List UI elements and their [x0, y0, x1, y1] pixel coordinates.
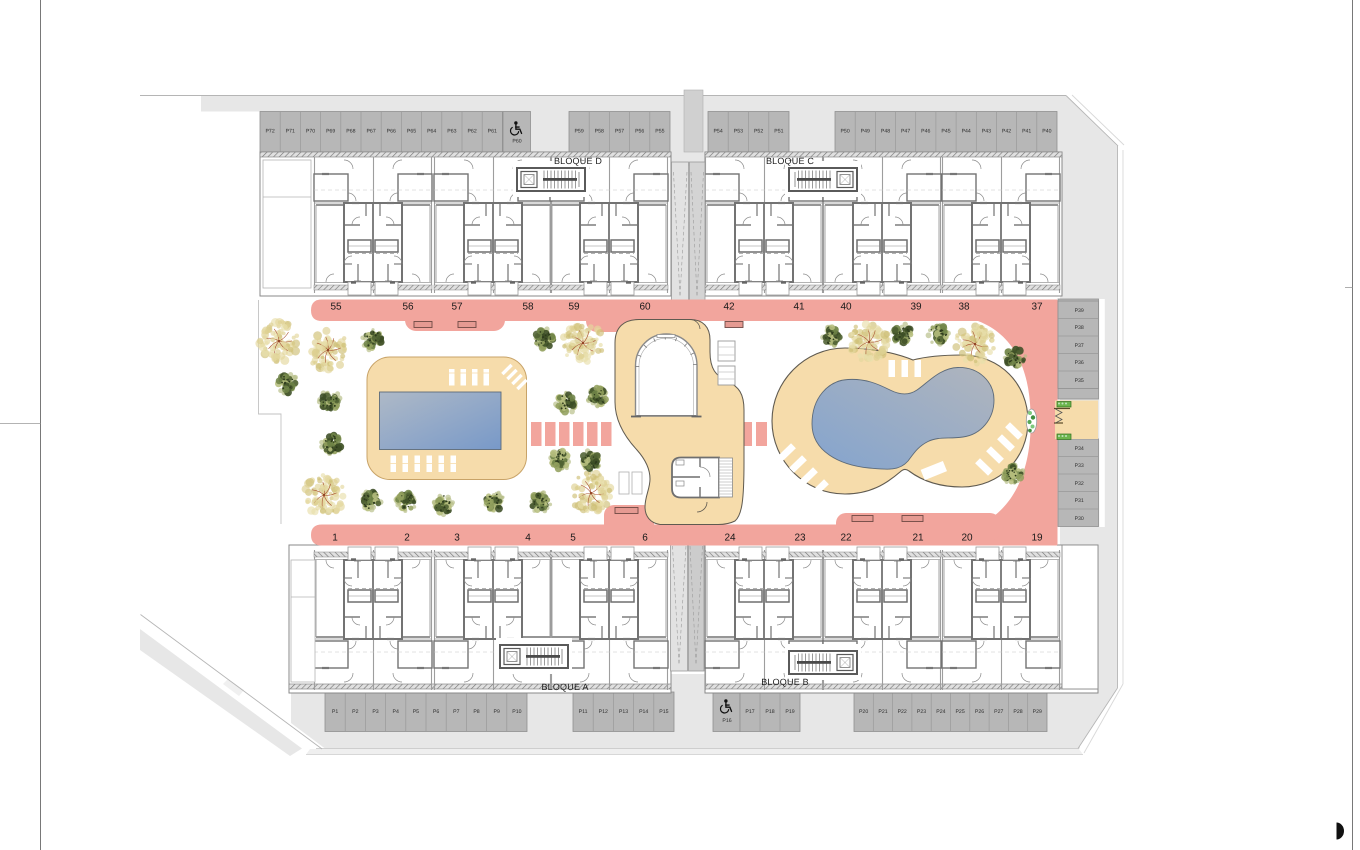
svg-text:P3: P3: [372, 709, 378, 715]
svg-text:41: 41: [793, 302, 805, 313]
svg-text:4: 4: [525, 533, 531, 544]
svg-text:P36: P36: [1075, 360, 1084, 366]
svg-text:P25: P25: [955, 709, 964, 715]
svg-text:P43: P43: [982, 129, 991, 135]
svg-text:59: 59: [568, 302, 580, 313]
svg-text:P18: P18: [765, 709, 774, 715]
svg-text:P7: P7: [453, 709, 459, 715]
svg-text:22: 22: [840, 533, 852, 544]
svg-text:58: 58: [522, 302, 534, 313]
svg-text:P59: P59: [574, 129, 583, 135]
svg-text:P16: P16: [722, 718, 731, 724]
svg-text:P2: P2: [352, 709, 358, 715]
svg-text:P63: P63: [447, 129, 456, 135]
svg-text:P10: P10: [512, 709, 521, 715]
svg-text:P61: P61: [488, 129, 497, 135]
svg-text:P60: P60: [512, 139, 521, 145]
svg-text:P58: P58: [595, 129, 604, 135]
svg-text:P34: P34: [1075, 446, 1084, 452]
svg-text:P11: P11: [579, 709, 588, 715]
svg-text:P14: P14: [639, 709, 648, 715]
svg-text:P70: P70: [306, 129, 315, 135]
svg-text:P41: P41: [1022, 129, 1031, 135]
svg-text:60: 60: [639, 302, 651, 313]
svg-text:6: 6: [642, 533, 648, 544]
svg-text:P30: P30: [1075, 516, 1084, 522]
svg-text:P62: P62: [467, 129, 476, 135]
svg-text:P39: P39: [1075, 308, 1084, 314]
svg-text:P21: P21: [878, 709, 887, 715]
svg-text:P17: P17: [745, 709, 754, 715]
svg-text:P35: P35: [1075, 378, 1084, 384]
svg-text:BLOQUE B: BLOQUE B: [761, 677, 809, 687]
svg-text:56: 56: [402, 302, 414, 313]
svg-text:P45: P45: [941, 129, 950, 135]
svg-text:1: 1: [332, 533, 338, 544]
svg-text:40: 40: [840, 302, 852, 313]
svg-text:P56: P56: [635, 129, 644, 135]
svg-text:P20: P20: [859, 709, 868, 715]
svg-text:P64: P64: [427, 129, 436, 135]
svg-text:P24: P24: [936, 709, 945, 715]
svg-text:P71: P71: [286, 129, 295, 135]
svg-text:P26: P26: [975, 709, 984, 715]
svg-text:2: 2: [404, 533, 410, 544]
svg-text:P52: P52: [754, 129, 763, 135]
svg-text:P9: P9: [494, 709, 500, 715]
svg-text:P8: P8: [473, 709, 479, 715]
svg-text:BLOQUE C: BLOQUE C: [766, 156, 814, 166]
svg-text:P6: P6: [433, 709, 439, 715]
svg-text:P28: P28: [1013, 709, 1022, 715]
svg-text:P31: P31: [1075, 498, 1084, 504]
svg-text:P32: P32: [1075, 481, 1084, 487]
svg-text:P68: P68: [346, 129, 355, 135]
svg-text:P50: P50: [840, 129, 849, 135]
svg-text:P12: P12: [599, 709, 608, 715]
svg-text:P33: P33: [1075, 463, 1084, 469]
svg-text:5: 5: [570, 533, 576, 544]
svg-text:37: 37: [1031, 302, 1043, 313]
svg-text:P37: P37: [1075, 343, 1084, 349]
svg-text:57: 57: [451, 302, 463, 313]
svg-text:P29: P29: [1033, 709, 1042, 715]
svg-text:42: 42: [723, 302, 735, 313]
svg-text:P55: P55: [655, 129, 664, 135]
svg-text:P38: P38: [1075, 325, 1084, 331]
svg-text:P53: P53: [734, 129, 743, 135]
svg-text:P49: P49: [861, 129, 870, 135]
svg-text:P51: P51: [774, 129, 783, 135]
svg-text:P13: P13: [619, 709, 628, 715]
svg-text:P5: P5: [413, 709, 419, 715]
svg-text:P42: P42: [1002, 129, 1011, 135]
svg-text:38: 38: [958, 302, 970, 313]
svg-text:P67: P67: [366, 129, 375, 135]
svg-text:BLOQUE D: BLOQUE D: [554, 156, 602, 166]
svg-text:P22: P22: [898, 709, 907, 715]
svg-text:P19: P19: [785, 709, 794, 715]
svg-text:BLOQUE A: BLOQUE A: [541, 682, 588, 692]
svg-text:P57: P57: [615, 129, 624, 135]
svg-text:P47: P47: [901, 129, 910, 135]
svg-text:P48: P48: [881, 129, 890, 135]
svg-text:P54: P54: [713, 129, 722, 135]
svg-text:3: 3: [454, 533, 460, 544]
svg-text:24: 24: [724, 533, 736, 544]
svg-text:55: 55: [330, 302, 342, 313]
svg-text:P72: P72: [265, 129, 274, 135]
svg-text:P66: P66: [387, 129, 396, 135]
svg-text:P4: P4: [393, 709, 399, 715]
svg-text:19: 19: [1031, 533, 1043, 544]
svg-text:P15: P15: [659, 709, 668, 715]
svg-text:P44: P44: [962, 129, 971, 135]
svg-text:23: 23: [794, 533, 806, 544]
svg-text:39: 39: [910, 302, 922, 313]
svg-text:P23: P23: [917, 709, 926, 715]
svg-text:P27: P27: [994, 709, 1003, 715]
svg-text:20: 20: [961, 533, 973, 544]
svg-text:P69: P69: [326, 129, 335, 135]
svg-text:P46: P46: [921, 129, 930, 135]
svg-text:21: 21: [912, 533, 924, 544]
svg-text:P1: P1: [332, 709, 338, 715]
svg-text:P40: P40: [1042, 129, 1051, 135]
svg-text:P65: P65: [407, 129, 416, 135]
